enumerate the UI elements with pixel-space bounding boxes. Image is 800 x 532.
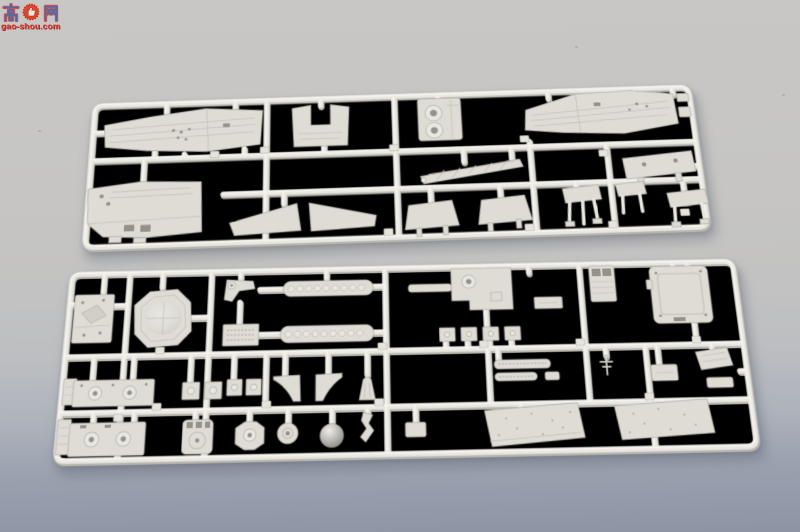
photo-stage: 高 网 gao-shou.com bbox=[0, 0, 800, 532]
dust-speck bbox=[38, 130, 41, 132]
sprue-bottom bbox=[48, 256, 765, 468]
part-slotted-turret bbox=[181, 419, 213, 454]
watermark-char-gao-icon bbox=[1, 2, 21, 22]
watermark-char-wang-icon bbox=[41, 2, 61, 22]
sprue-top bbox=[77, 81, 716, 253]
part-octagon-cylinder bbox=[235, 421, 265, 450]
part-hull-strip-1 bbox=[72, 379, 155, 407]
dust-speck bbox=[782, 94, 785, 96]
part-number-placard bbox=[222, 324, 258, 346]
part-equipment-box-right bbox=[651, 364, 679, 380]
part-hull-strip-2 bbox=[67, 422, 146, 457]
part-small-plate-right bbox=[706, 377, 733, 388]
part-round-fitting bbox=[277, 423, 298, 444]
watermark-emblem-icon bbox=[22, 3, 40, 21]
part-chain-strip-1 bbox=[283, 280, 373, 297]
watermark-site-text: gao-shou.com bbox=[1, 21, 65, 31]
watermark-logo: 高 网 gao-shou.com bbox=[1, 2, 65, 31]
dust-speck bbox=[575, 46, 578, 48]
part-radar-dome bbox=[320, 423, 344, 447]
part-chain-strip-2 bbox=[280, 324, 374, 342]
part-hatch-lid bbox=[645, 266, 714, 324]
part-small-box-3 bbox=[405, 422, 426, 437]
part-ladder-column bbox=[588, 266, 616, 302]
part-angle-fitting bbox=[534, 297, 562, 309]
part-barbette-block bbox=[417, 98, 462, 141]
part-box-pyramid bbox=[71, 294, 115, 343]
watermark-row bbox=[1, 2, 65, 22]
part-deck-panel-2 bbox=[614, 399, 716, 440]
